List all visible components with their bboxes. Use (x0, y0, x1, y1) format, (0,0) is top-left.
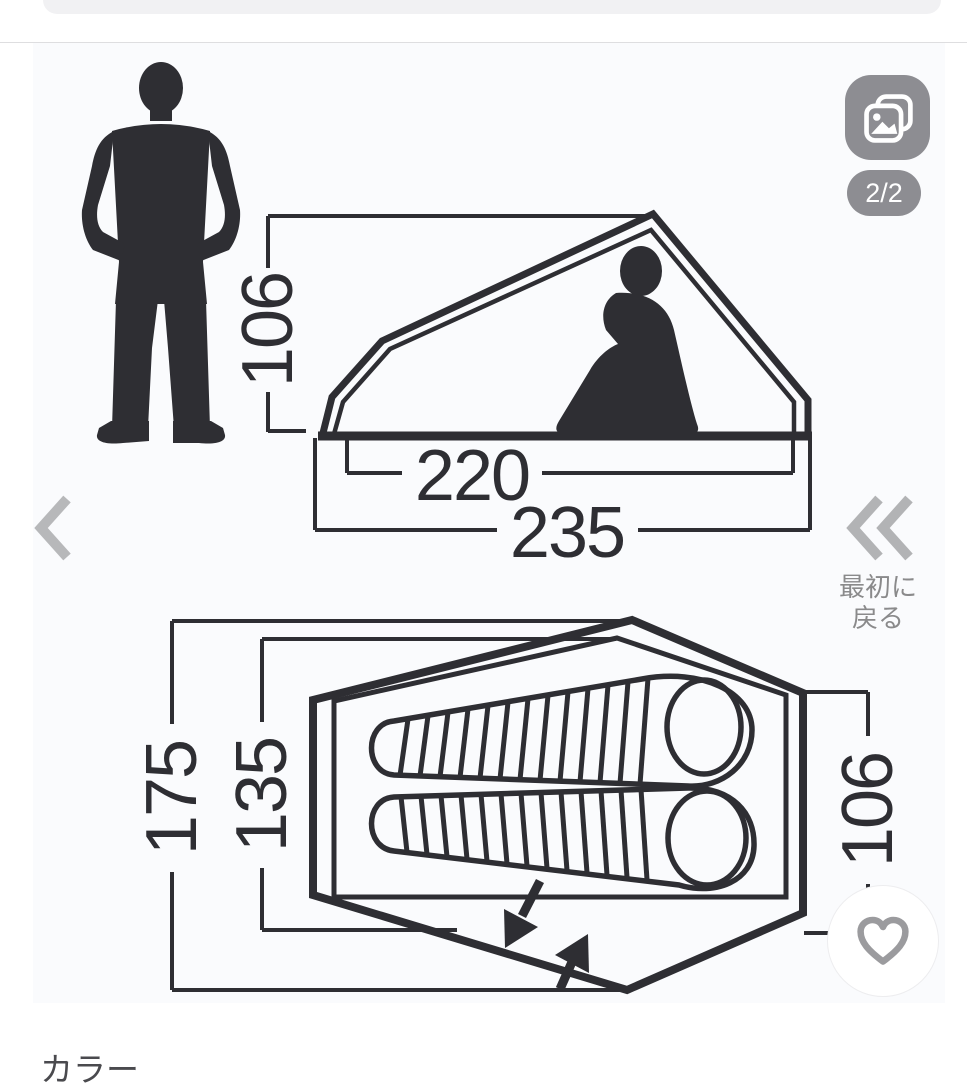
app-header (0, 0, 967, 43)
product-image[interactable]: 106 220 (33, 43, 945, 1003)
back-to-first-line1: 最初に (830, 572, 926, 603)
back-to-first-line2: 戻る (830, 603, 926, 634)
image-counter-badge: 2/2 (847, 170, 921, 216)
image-counter: 2/2 (865, 178, 903, 209)
favorite-button[interactable] (827, 885, 939, 997)
top-right-depth-label: 106 (828, 753, 908, 867)
side-height-label: 106 (228, 273, 308, 387)
back-to-first-label[interactable]: 最初に 戻る (830, 572, 926, 634)
tent-top-view: 175 135 106 (132, 620, 908, 990)
heart-icon (853, 913, 913, 969)
top-outer-width-label: 175 (132, 741, 212, 855)
double-chevron-left-icon[interactable] (840, 494, 916, 562)
tent-side-view: 106 220 (228, 214, 812, 573)
standing-person-silhouette (82, 62, 240, 444)
tent-dimension-diagram: 106 220 (33, 43, 945, 1003)
gallery-button[interactable] (845, 75, 930, 160)
search-bar[interactable] (43, 0, 941, 14)
color-section-heading: カラー (40, 1050, 139, 1090)
tent-outer-outline (322, 214, 808, 437)
chevron-left-icon[interactable] (34, 494, 76, 562)
sleeping-bags (372, 676, 755, 888)
sitting-person-silhouette (556, 246, 698, 434)
photos-icon (860, 90, 916, 146)
top-inner-width-label: 135 (222, 738, 302, 852)
side-outer-length-label: 235 (510, 493, 624, 573)
dimension-inner-length-220 (347, 438, 793, 473)
